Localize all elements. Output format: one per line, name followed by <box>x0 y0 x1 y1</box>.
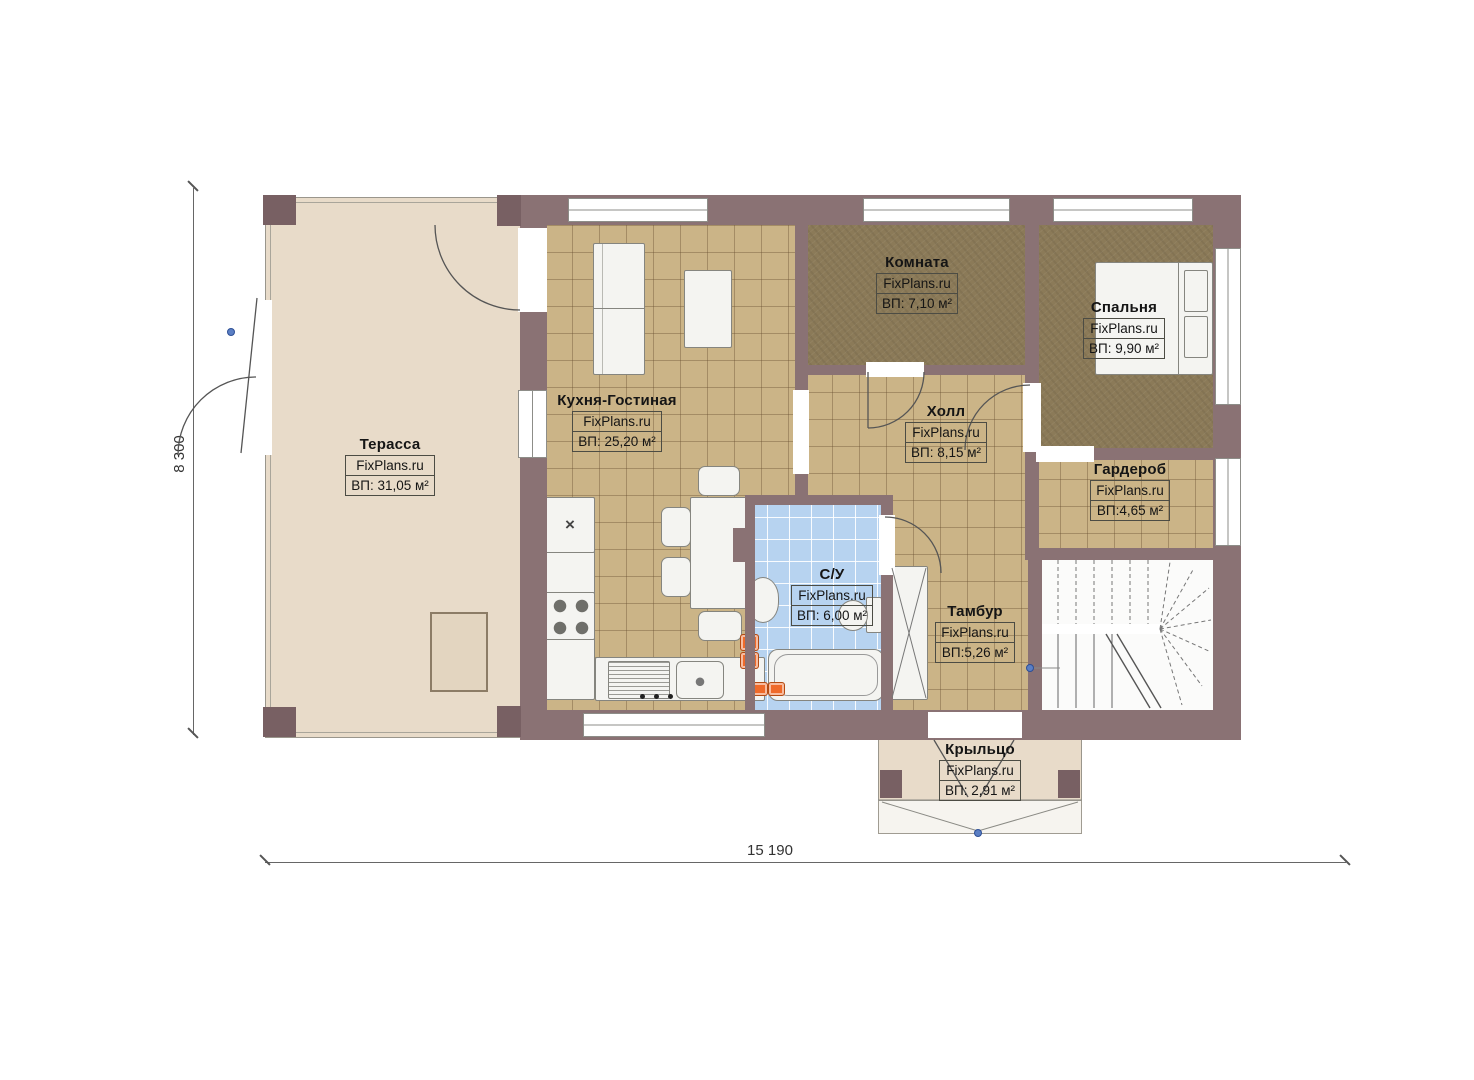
window-kitchen-bottom <box>583 713 765 737</box>
brand-watermark: FixPlans.ru <box>1091 481 1169 501</box>
room-area: ВП:5,26 м² <box>936 643 1014 662</box>
room-area: ВП: 31,05 м² <box>346 476 434 495</box>
dishwasher <box>608 661 670 699</box>
dimension-label-height: 8 300 <box>171 419 189 489</box>
room-area: ВП: 8,15 м² <box>906 443 986 462</box>
brand-watermark: FixPlans.ru <box>877 274 957 294</box>
room-label-porch: Крыльцо FixPlans.ru ВП: 2,91 м² <box>926 741 1034 801</box>
brand-watermark: FixPlans.ru <box>940 761 1020 781</box>
room-info-box: FixPlans.ru ВП: 9,90 м² <box>1083 318 1165 359</box>
brand-watermark: FixPlans.ru <box>792 586 872 606</box>
porch-post <box>880 770 902 798</box>
room-name: С/У <box>782 566 882 583</box>
appliance-knob <box>654 694 659 699</box>
coffee-table <box>684 270 732 348</box>
radiator <box>768 682 785 696</box>
dimension-line-horizontal <box>265 862 1346 863</box>
partition-bedroom <box>1025 450 1039 560</box>
room-name: Крыльцо <box>926 741 1034 758</box>
brand-watermark: FixPlans.ru <box>1084 319 1164 339</box>
room-label-bedroom: Спальня FixPlans.ru ВП: 9,90 м² <box>1072 299 1176 359</box>
bathroom-wall-top <box>745 495 893 505</box>
room-info-box: FixPlans.ru ВП: 2,91 м² <box>939 760 1021 801</box>
door-opening-wardrobe <box>1036 446 1094 462</box>
brand-watermark: FixPlans.ru <box>346 456 434 476</box>
dimension-line-vertical <box>193 188 194 735</box>
room-area: ВП: 25,20 м² <box>573 432 661 451</box>
terrace-door-opening <box>259 300 272 455</box>
door-opening-room <box>866 362 924 377</box>
room-name: Комната <box>862 254 972 271</box>
door-handle-marker <box>227 328 235 336</box>
bathtub <box>768 649 884 701</box>
room-label-terrace: Терасса FixPlans.ru ВП: 31,05 м² <box>330 436 450 496</box>
brand-watermark: FixPlans.ru <box>573 412 661 432</box>
partition-bedroom-wardrobe <box>1085 448 1215 460</box>
kitchen-sink: × <box>545 497 595 553</box>
window-kitchen-top <box>568 198 708 222</box>
duct-block <box>733 528 755 562</box>
sofa <box>593 243 645 375</box>
kitchen-sink-bowl <box>676 661 724 699</box>
passage-kitchen-hall <box>793 390 809 474</box>
room-label-room: Комната FixPlans.ru ВП: 7,10 м² <box>862 254 972 314</box>
terrace-post <box>497 195 521 226</box>
window-room-top <box>863 198 1010 222</box>
chair <box>661 507 691 547</box>
partition-room-hall <box>922 365 1035 375</box>
room-area: ВП: 9,90 м² <box>1084 339 1164 358</box>
stairs-marker <box>1026 664 1034 672</box>
appliance-knob <box>668 694 673 699</box>
chair <box>661 557 691 597</box>
porch-post <box>1058 770 1080 798</box>
pillow <box>1184 270 1208 312</box>
floor-plan-canvas: 8 300 15 190 × <box>0 0 1474 1080</box>
terrace-post <box>263 707 296 737</box>
room-info-box: FixPlans.ru ВП: 8,15 м² <box>905 422 987 463</box>
room-info-box: FixPlans.ru ВП: 7,10 м² <box>876 273 958 314</box>
brand-watermark: FixPlans.ru <box>906 423 986 443</box>
partition-bedroom <box>1025 225 1039 385</box>
pillow <box>1184 316 1208 358</box>
entry-door-opening <box>928 712 1022 738</box>
room-info-box: FixPlans.ru ВП: 6,00 м² <box>791 585 873 626</box>
room-info-box: FixPlans.ru ВП:5,26 м² <box>935 622 1015 663</box>
room-area: ВП: 6,00 м² <box>792 606 872 625</box>
window-bedroom-right <box>1215 248 1241 405</box>
room-info-box: FixPlans.ru ВП: 31,05 м² <box>345 455 435 496</box>
window-kitchen-left <box>518 390 547 458</box>
dimension-tick <box>259 854 270 865</box>
room-area: ВП: 2,91 м² <box>940 781 1020 800</box>
room-label-kitchen-living: Кухня-Гостиная FixPlans.ru ВП: 25,20 м² <box>552 392 682 452</box>
room-label-hall: Холл FixPlans.ru ВП: 8,15 м² <box>896 403 996 463</box>
terrace-post <box>263 195 296 225</box>
room-name: Кухня-Гостиная <box>552 392 682 409</box>
room-area: ВП: 7,10 м² <box>877 294 957 313</box>
room-info-box: FixPlans.ru ВП: 25,20 м² <box>572 411 662 452</box>
staircase-area <box>1036 556 1214 711</box>
room-label-bathroom: С/У FixPlans.ru ВП: 6,00 м² <box>782 566 882 626</box>
chair <box>698 466 740 496</box>
bathtub-inner <box>774 654 878 696</box>
stove <box>545 592 595 640</box>
dimension-label-width: 15 190 <box>715 842 825 859</box>
porch-marker <box>974 829 982 837</box>
bathroom-wall-right <box>881 495 893 517</box>
room-name: Спальня <box>1072 299 1176 316</box>
partition-wardrobe-stairs <box>1035 548 1215 560</box>
door-opening-terrace <box>518 228 547 312</box>
room-name: Гардероб <box>1078 461 1182 478</box>
room-area: ВП:4,65 м² <box>1091 501 1169 520</box>
terrace-mat <box>430 612 488 692</box>
brand-watermark: FixPlans.ru <box>936 623 1014 643</box>
room-name: Холл <box>896 403 996 420</box>
door-opening-bedroom <box>1023 383 1041 452</box>
window-bedroom-top <box>1053 198 1193 222</box>
dimension-tick <box>1339 854 1350 865</box>
bathroom-wall-right <box>881 573 893 713</box>
appliance-knob <box>640 694 645 699</box>
room-label-vestibule: Тамбур FixPlans.ru ВП:5,26 м² <box>922 603 1028 663</box>
room-info-box: FixPlans.ru ВП:4,65 м² <box>1090 480 1170 521</box>
window-wardrobe-right <box>1215 458 1241 546</box>
chair <box>698 611 742 641</box>
partition-room-hall <box>797 365 868 375</box>
room-name: Тамбур <box>922 603 1028 620</box>
room-label-wardrobe: Гардероб FixPlans.ru ВП:4,65 м² <box>1078 461 1182 521</box>
terrace-post <box>497 706 521 737</box>
partition-vestibule-stairs <box>1028 558 1042 710</box>
room-name: Терасса <box>330 436 450 453</box>
